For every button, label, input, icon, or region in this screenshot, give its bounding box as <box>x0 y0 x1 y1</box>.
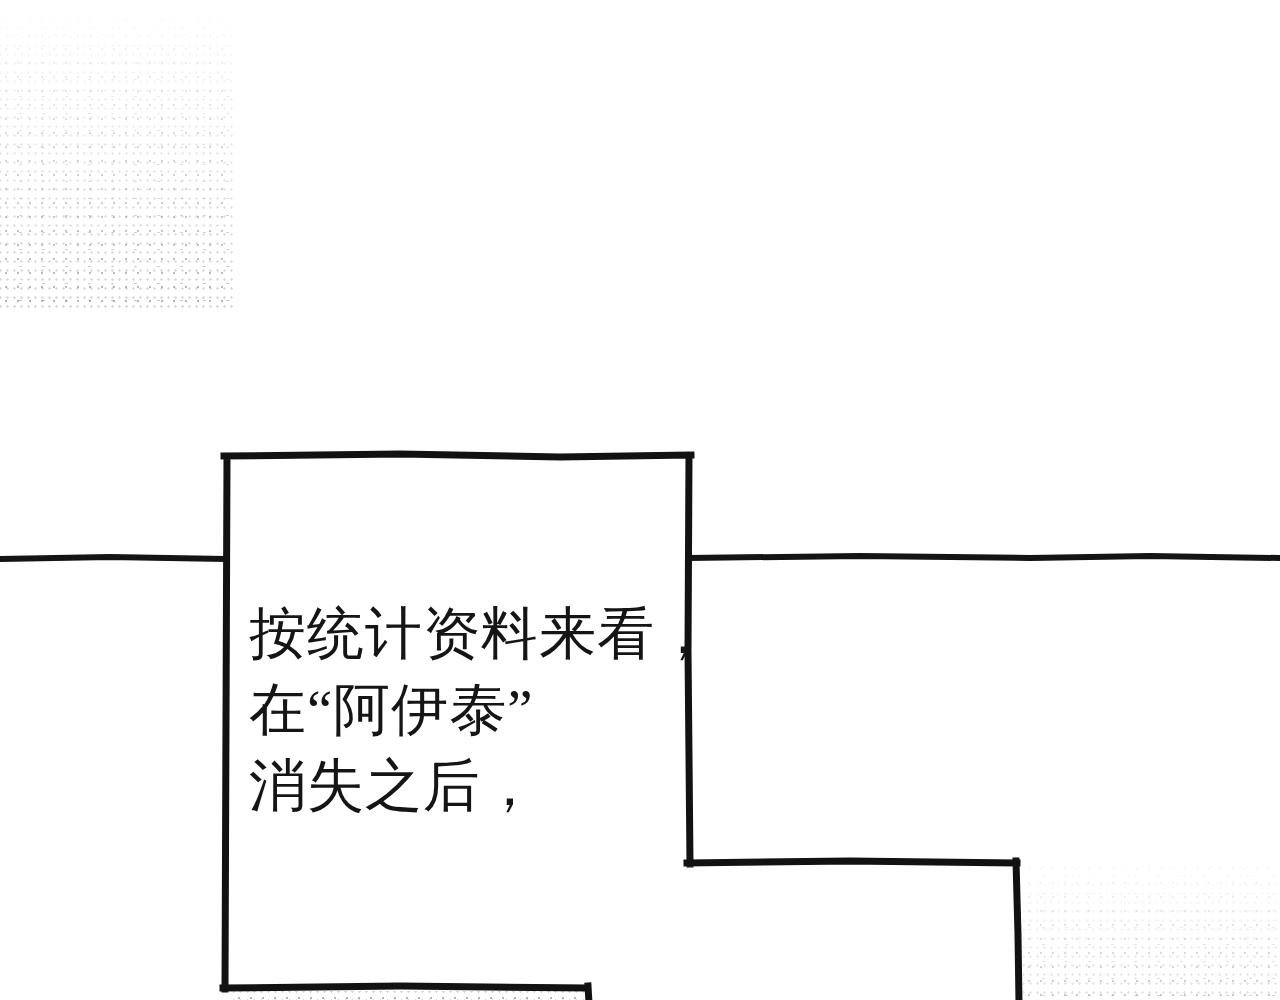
scene-line-left <box>0 557 226 559</box>
speech-line-2: 在“阿伊泰” <box>249 672 713 748</box>
speech-line-1: 按统计资料来看， <box>249 596 713 672</box>
panel-artwork <box>0 0 1280 1000</box>
speech-line-3: 消失之后， <box>249 748 713 824</box>
comic-page: 按统计资料来看， 在“阿伊泰” 消失之后， <box>0 0 1280 1000</box>
scene-line-right <box>688 556 1280 558</box>
speech-text: 按统计资料来看， 在“阿伊泰” 消失之后， <box>249 596 713 824</box>
